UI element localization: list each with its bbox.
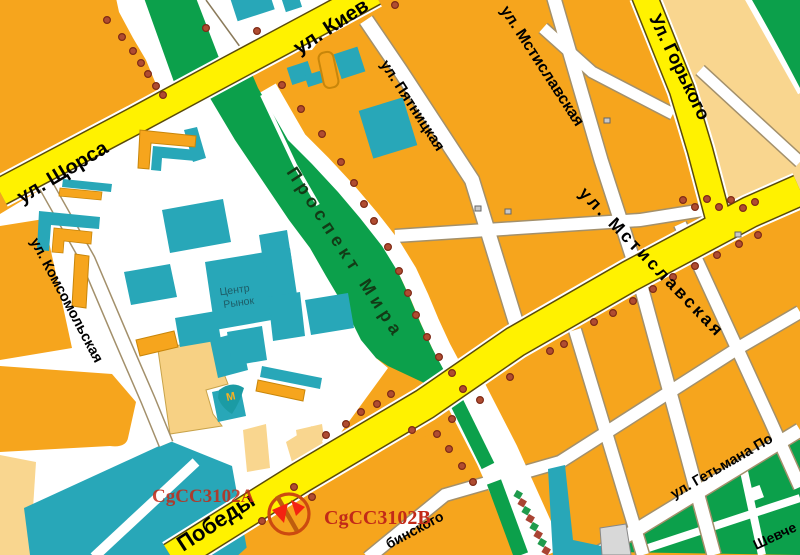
svg-text:CgCC3102A: CgCC3102A bbox=[152, 486, 255, 507]
svg-text:CgCC3102B: CgCC3102B bbox=[324, 507, 431, 529]
